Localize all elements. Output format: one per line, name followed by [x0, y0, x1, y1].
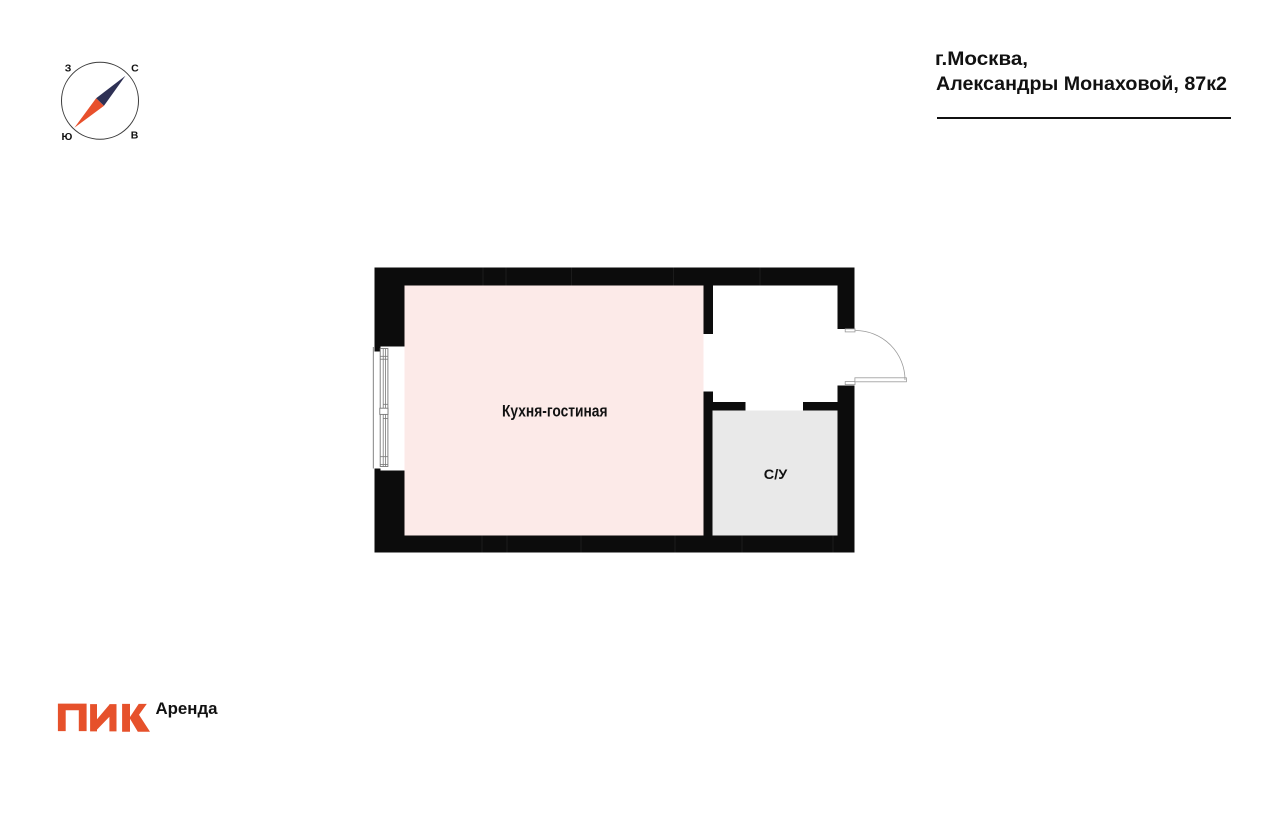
svg-text:В: В	[131, 130, 139, 142]
svg-text:Аренда: Аренда	[156, 700, 219, 718]
svg-text:С/У: С/У	[764, 466, 788, 482]
svg-text:Александры Монаховой, 87к2: Александры Монаховой, 87к2	[936, 74, 1227, 95]
svg-text:С: С	[131, 63, 139, 75]
svg-text:г.Москва,: г.Москва,	[935, 49, 1028, 70]
svg-text:Ю: Ю	[61, 131, 72, 143]
svg-text:З: З	[65, 63, 72, 75]
svg-text:Кухня-гостиная: Кухня-гостиная	[502, 401, 608, 420]
